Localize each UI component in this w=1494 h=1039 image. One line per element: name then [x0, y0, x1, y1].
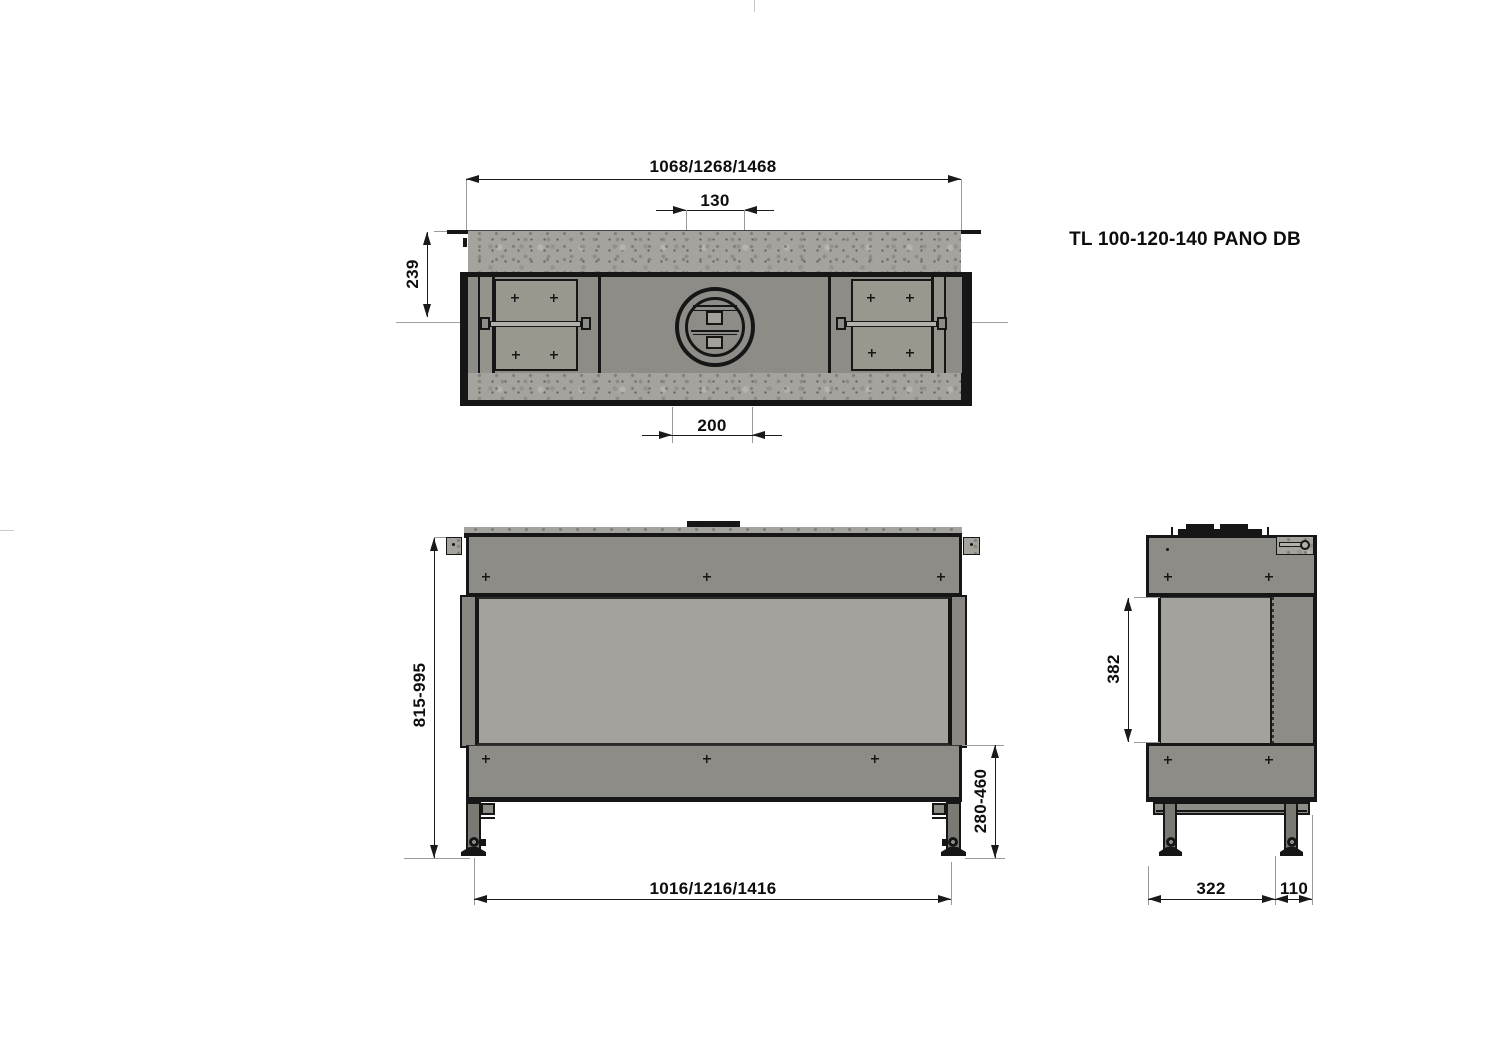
arrowhead: [474, 895, 487, 903]
dimension-line: [995, 745, 996, 858]
screw-mark: [868, 349, 876, 357]
dimension-line: [1128, 598, 1129, 742]
extension-line: [961, 179, 962, 230]
latch-fitting: [581, 317, 591, 330]
rear-column-side: [1272, 597, 1313, 743]
dimension-line: [474, 899, 951, 900]
wall-bracket-left: [446, 537, 462, 555]
screw-mark: [906, 349, 914, 357]
dim-rear-depth-label: 110: [1244, 879, 1344, 899]
screw-mark: [906, 294, 914, 302]
screw-mark: [703, 755, 711, 763]
arrowhead: [1124, 729, 1132, 742]
adjustable-foot: [461, 847, 486, 856]
lower-body-side: [1146, 743, 1317, 802]
flue-channel-line: [693, 334, 737, 335]
dim-flue-offset-label: 130: [665, 191, 765, 211]
side-trim-right: [950, 595, 967, 748]
latch-rod: [490, 321, 581, 327]
dimension-line: [466, 179, 961, 180]
mounting-flange-tab: [463, 238, 467, 247]
panel-divider-line: [598, 277, 601, 373]
screw-mark: [482, 573, 490, 581]
crop-mark-left: [0, 530, 14, 531]
screw-mark: [867, 294, 875, 302]
screw-mark: [512, 351, 520, 359]
insulation-strip-top: [468, 230, 961, 277]
glass-gap: [1149, 597, 1158, 743]
arrowhead: [430, 845, 438, 858]
screw-mark: [703, 573, 711, 581]
crop-mark-top: [754, 0, 755, 12]
arrowhead: [991, 745, 999, 758]
screw-mark: [1164, 756, 1172, 764]
screw-mark: [1265, 573, 1273, 581]
arrowhead: [938, 895, 951, 903]
dim-depth-to-axis-label: 239: [403, 234, 423, 314]
screw-mark: [871, 755, 879, 763]
mounting-flange-tab: [961, 230, 981, 234]
dim-base-height-label: 280-460: [971, 746, 991, 856]
arrowhead: [1124, 598, 1132, 611]
arrowhead: [1148, 895, 1161, 903]
side-trim-left: [460, 595, 477, 748]
flue-channel-line: [693, 305, 737, 307]
screw-mark: [482, 755, 490, 763]
leg-bracket-line: [932, 817, 946, 819]
arrowhead: [948, 175, 961, 183]
arrowhead: [423, 232, 431, 245]
adjustable-foot: [941, 847, 966, 856]
bracket-hole: [452, 543, 455, 546]
dim-overall-height-label: 815-995: [410, 650, 430, 740]
screw-mark: [1265, 756, 1273, 764]
mounting-flange-tab: [447, 230, 468, 234]
extension-line: [951, 862, 952, 905]
wall-bracket-right: [963, 537, 980, 555]
dim-overall-width-label: 1068/1268/1468: [588, 157, 838, 177]
extension-line: [1134, 597, 1160, 598]
panel-divider-line: [828, 277, 831, 373]
glass-panel-side: [1158, 597, 1272, 743]
extension-line: [466, 179, 467, 230]
upper-body-panel: [466, 537, 962, 597]
extension-line: [1134, 742, 1160, 743]
bracket-hole: [970, 543, 973, 546]
leveling-bolt: [1287, 837, 1297, 847]
dim-flue-cutout-label: 200: [662, 416, 762, 436]
leg-bracket-line: [481, 817, 495, 819]
latch-rod: [846, 321, 937, 327]
dim-glass-height-label: 382: [1104, 634, 1124, 704]
top-tick: [1267, 527, 1269, 535]
flue-port: [706, 336, 723, 349]
dimension-line: [434, 538, 435, 858]
dim-feet-span-label: 1016/1216/1416: [563, 879, 863, 899]
leg-bracket: [481, 803, 495, 815]
latch-fitting: [480, 317, 490, 330]
arrowhead: [430, 538, 438, 551]
drawing-title: TL 100-120-140 PANO DB: [1040, 229, 1330, 251]
screw-mark: [550, 351, 558, 359]
insulation-strip-bottom: [468, 373, 961, 400]
bolt-nut: [480, 839, 486, 846]
arrowhead: [991, 845, 999, 858]
screw-mark: [937, 573, 945, 581]
screw-mark: [1164, 573, 1172, 581]
flue-channel-line: [691, 330, 739, 332]
screw-mark: [550, 294, 558, 302]
lower-body-panel: [466, 745, 962, 802]
arrowhead: [423, 304, 431, 317]
arrowhead: [466, 175, 479, 183]
leveling-bolt: [948, 837, 958, 847]
flue-port: [706, 311, 723, 325]
leveling-bolt: [469, 837, 479, 847]
glass-panel: [476, 597, 951, 745]
latch-knob: [1300, 540, 1310, 550]
leveling-bolt: [1166, 837, 1176, 847]
extension-line: [965, 858, 1005, 859]
flue-collar-step: [1220, 524, 1248, 529]
top-tick: [1171, 527, 1173, 535]
flue-collar-step: [1186, 524, 1214, 529]
latch-fitting: [836, 317, 846, 330]
leg-bracket: [932, 803, 946, 815]
rear-edge: [1313, 597, 1317, 743]
technical-drawing-page: TL 100-120-140 PANO DB 1068/1268/1468 13…: [0, 0, 1494, 1039]
panel-dot: [1166, 548, 1169, 551]
extension-line: [404, 858, 470, 859]
screw-mark: [511, 294, 519, 302]
bolt-nut: [942, 839, 948, 846]
latch-fitting: [937, 317, 947, 330]
